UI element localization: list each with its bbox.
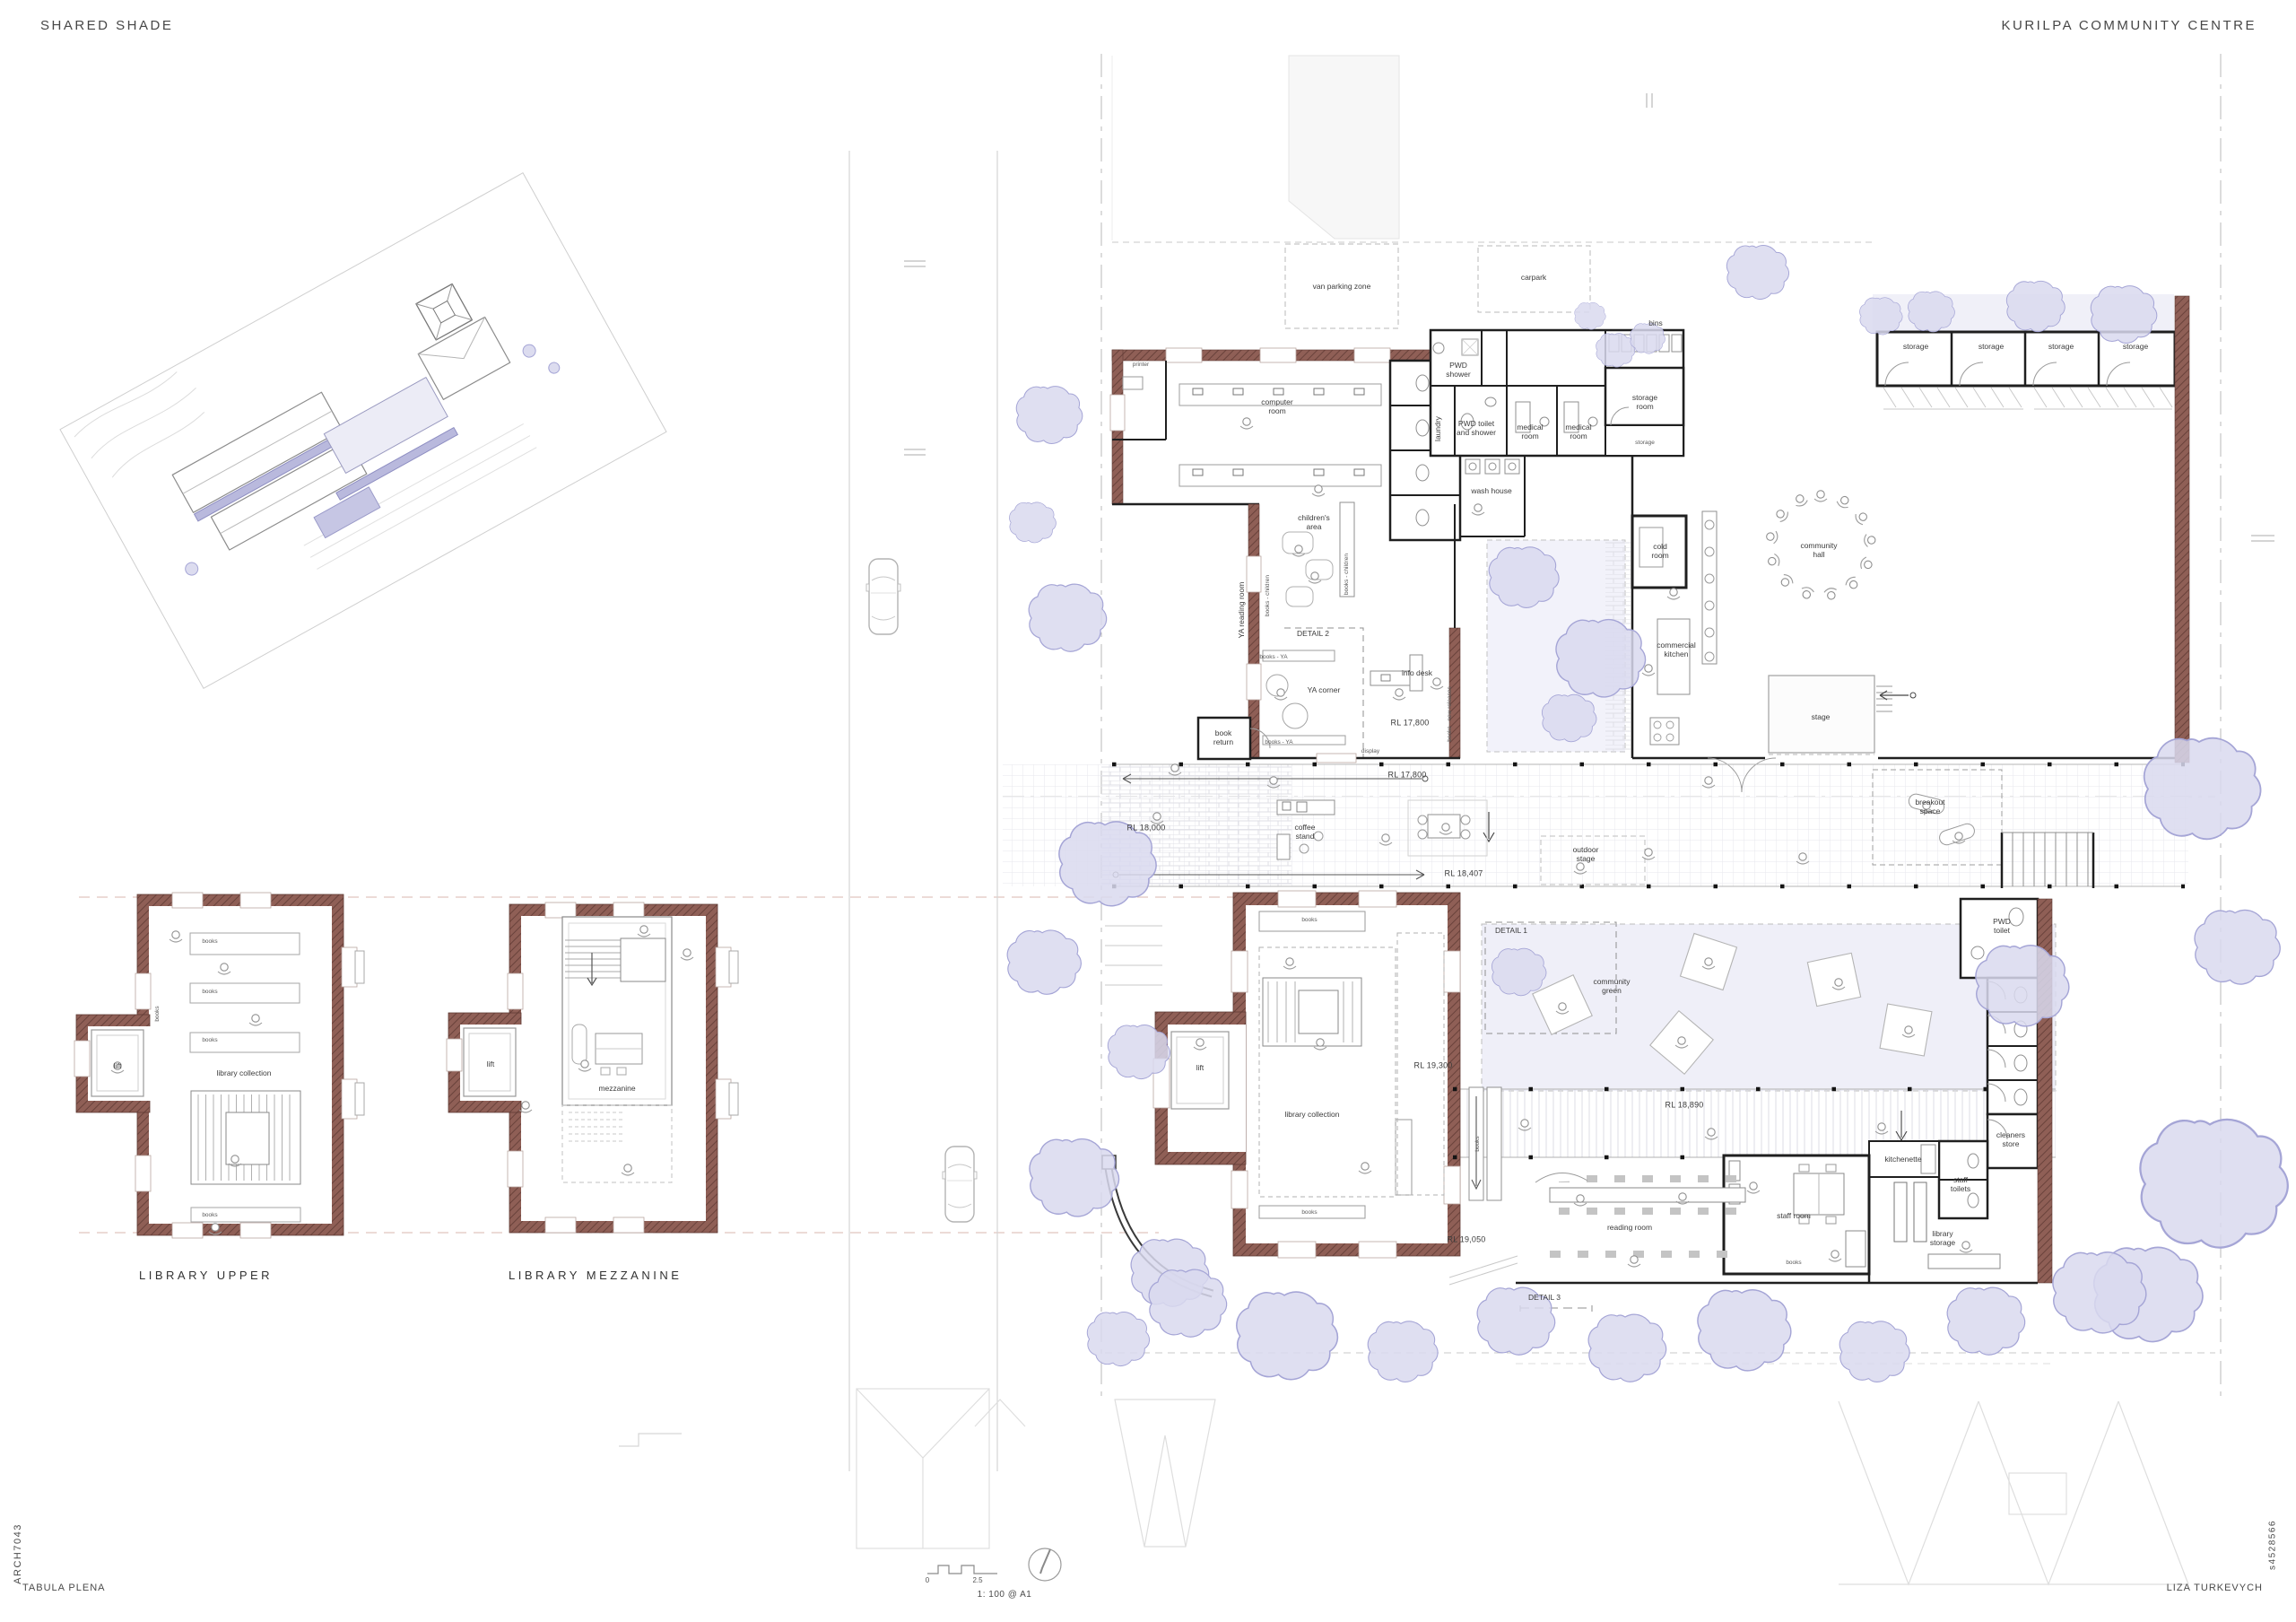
library-mezzanine-plan — [447, 903, 738, 1233]
services-block — [1431, 330, 1683, 536]
project-name: TABULA PLENA — [22, 1583, 106, 1593]
axonometric-drawing — [60, 173, 666, 689]
presentation-sheet: liftlibrary collectionbooksbooksbooksboo… — [0, 0, 2296, 1622]
kitchen-hall-stage — [1632, 296, 2189, 792]
scalebar-end: 2.5 — [972, 1576, 982, 1584]
plan-title-library-upper: LIBRARY UPPER — [139, 1269, 273, 1282]
scalebar-start: 0 — [926, 1576, 929, 1584]
student-id: s4528566 — [2268, 1520, 2278, 1570]
scale-note: 1: 100 @ A1 — [978, 1590, 1032, 1600]
sheet-title-right: KURILPA COMMUNITY CENTRE — [2002, 18, 2257, 33]
course-code: ARCH7043 — [13, 1523, 23, 1584]
sheet-title-left: SHARED SHADE — [40, 18, 173, 33]
library-upper-plan — [74, 893, 364, 1238]
plan-title-library-mezzanine: LIBRARY MEZZANINE — [509, 1269, 682, 1282]
north-arrow — [1029, 1548, 1061, 1581]
neighbour-houses — [857, 1389, 2188, 1584]
street-cars — [866, 559, 977, 1222]
author-name: LIZA TURKEVYCH — [2167, 1583, 2263, 1593]
scale-bar — [927, 1565, 997, 1574]
library-ground-plan — [1102, 891, 1518, 1294]
drawing-linework — [0, 0, 2296, 1622]
community-hall-circle — [1766, 491, 1876, 601]
